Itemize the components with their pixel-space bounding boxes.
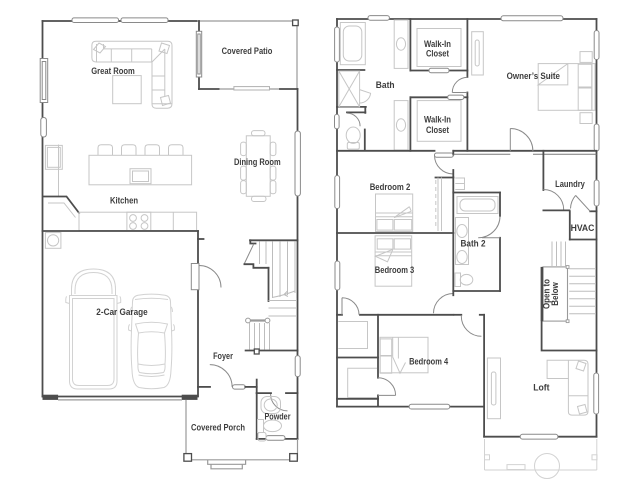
- svg-text:Laundry: Laundry: [555, 178, 585, 189]
- svg-text:Bedroom 4: Bedroom 4: [409, 355, 449, 366]
- svg-text:Powder: Powder: [265, 411, 291, 422]
- svg-text:HVAC: HVAC: [571, 222, 595, 233]
- svg-text:Below: Below: [549, 282, 560, 306]
- svg-text:Closet: Closet: [426, 47, 449, 58]
- svg-text:2-Car Garage: 2-Car Garage: [96, 306, 147, 317]
- svg-text:Great Room: Great Room: [91, 65, 135, 76]
- svg-text:Bedroom 2: Bedroom 2: [370, 181, 411, 192]
- svg-text:Kitchen: Kitchen: [110, 195, 138, 206]
- svg-text:Walk-In: Walk-In: [424, 114, 451, 125]
- svg-text:Dining Room: Dining Room: [234, 156, 281, 167]
- svg-text:Covered Patio: Covered Patio: [222, 45, 273, 56]
- svg-text:Bath: Bath: [376, 79, 395, 90]
- svg-text:Owner’s Suite: Owner’s Suite: [507, 70, 560, 81]
- svg-text:Covered Porch: Covered Porch: [191, 422, 245, 433]
- svg-text:Loft: Loft: [533, 382, 549, 393]
- svg-text:Closet: Closet: [426, 124, 449, 135]
- svg-text:Bath 2: Bath 2: [461, 238, 486, 249]
- svg-text:Foyer: Foyer: [213, 350, 233, 361]
- svg-text:Bedroom 3: Bedroom 3: [375, 264, 414, 275]
